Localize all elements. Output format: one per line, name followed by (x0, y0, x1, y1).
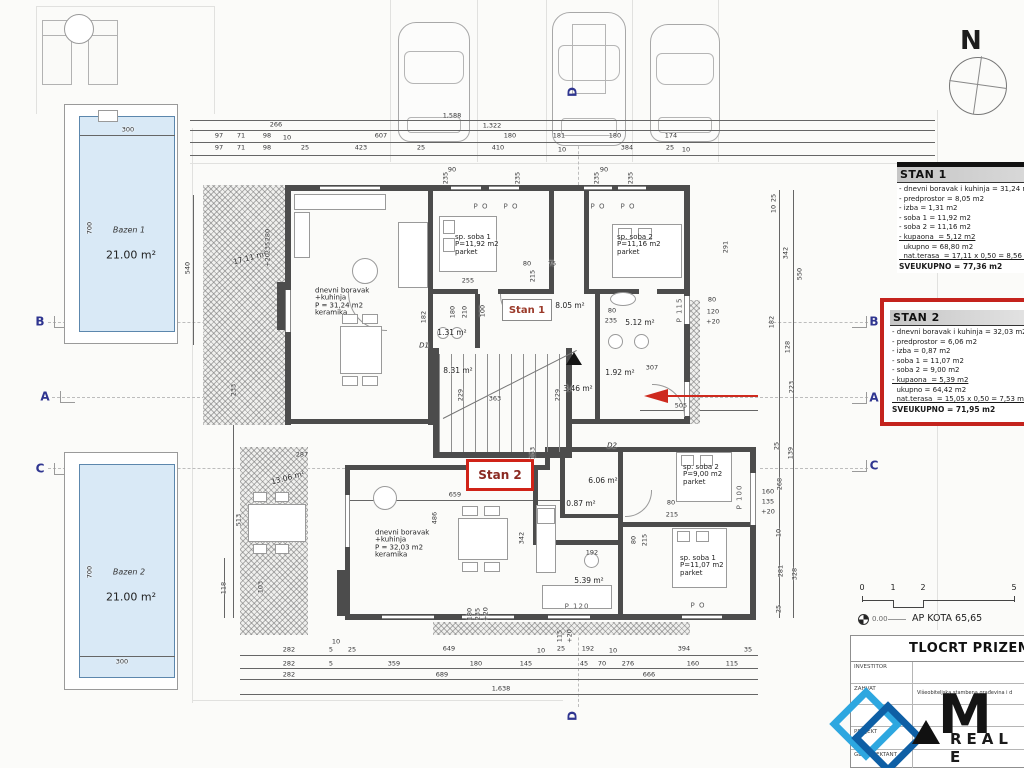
window-label: P O (474, 203, 489, 210)
dim-label: 182 (421, 311, 428, 323)
dim-line (240, 668, 758, 669)
chair-icon (253, 544, 267, 554)
dim-label: 25 (776, 605, 783, 613)
dim-label: 550 (797, 268, 804, 280)
pillow-icon (677, 531, 690, 542)
dim-label: 210 (462, 306, 469, 318)
dim-label: 180 (470, 661, 482, 668)
dim-label: 394 (678, 646, 690, 653)
dim-line (779, 190, 780, 618)
dim-label: 25 (771, 194, 778, 202)
chair-icon (484, 562, 500, 572)
dim-label: 282 (283, 647, 295, 654)
dim-label: 10 (332, 639, 340, 646)
pillow-icon (696, 531, 709, 542)
dim-label: 10 (558, 147, 566, 154)
pool-ladder-icon (98, 110, 118, 122)
window-label: P O (504, 203, 519, 210)
dim-label: 115 (557, 630, 564, 642)
room-label: dnevni boravak +kuhinja P = 31,24 m2 ker… (315, 287, 369, 316)
dim-label: 282 (283, 672, 295, 679)
dim-label: 268 (777, 478, 784, 490)
panel-line: - kupaona = 5,39 m2 (892, 376, 1024, 386)
dim-label: 423 (355, 145, 367, 152)
dim-label: 363 (489, 396, 501, 403)
dim-label: 75 (548, 261, 556, 268)
dim-label: 307 (646, 365, 658, 372)
panel-line: - izba = 0,87 m2 (892, 347, 1024, 357)
dim-label: 540 (185, 262, 192, 274)
dim-label: 97 (215, 133, 223, 140)
dim-label: 71 (237, 133, 245, 140)
dim-label: 689 (436, 672, 448, 679)
kitchen-counter-icon (398, 222, 428, 288)
window-label: P 120 (565, 603, 590, 610)
terrace-table-icon (248, 504, 306, 542)
panel-line: - predprostor = 6,06 m2 (892, 338, 1024, 348)
pool-area: 21.00 m² (106, 249, 156, 262)
dim-label: 25 (417, 145, 425, 152)
dim-label: +20 (761, 509, 775, 516)
dim-label: 182 (769, 316, 776, 328)
car-icon (552, 12, 626, 146)
dim-label: 359 (388, 661, 400, 668)
dim-label: 649 (443, 646, 455, 653)
panel-line: - izba = 1,31 m2 (899, 204, 1024, 214)
dim-label: 115 (726, 661, 738, 668)
door-label: D1 (419, 342, 429, 349)
panel-line: - predprostor = 8,05 m2 (899, 195, 1024, 205)
dim-label: 659 (449, 492, 461, 499)
grid-letter: D (567, 87, 580, 97)
dim-label: 1,638 (492, 686, 511, 693)
stan2-panel-title: STAN 2 (890, 310, 1024, 326)
dim-label: 223 (789, 381, 796, 393)
dim-label: 35 (744, 647, 752, 654)
door-opening (684, 382, 690, 416)
dim-label: 10 (682, 147, 690, 154)
dining-table-icon (340, 326, 382, 374)
dim-label: 145 (520, 661, 532, 668)
dim-label: 282 (283, 661, 295, 668)
dim-line (240, 655, 758, 656)
dim-label: 25 (348, 647, 356, 654)
dim-label: 255 (462, 278, 474, 285)
panel-line: ukupno = 64,42 m2 (892, 386, 1024, 396)
dim-label: 215 (642, 534, 649, 546)
dim-label: 10 (776, 529, 783, 537)
dim-label: 98 (263, 133, 271, 140)
window (618, 186, 646, 190)
dim-label: 410 (492, 145, 504, 152)
dim-label: 160 (687, 661, 699, 668)
panel-line: - dnevni boravak i kuhinja = 31,24 m2 (899, 185, 1024, 195)
window-label: P O (591, 203, 606, 210)
dim-label: 192 (586, 550, 598, 557)
panel-line: - kupaona = 5,12 m2 (899, 233, 1024, 243)
dim-label: 80 (608, 308, 616, 315)
dim-label: 276 (622, 661, 634, 668)
window (451, 186, 481, 190)
stan1-info-panel: STAN 1 - dnevni boravak i kuhinja = 31,2… (897, 162, 1024, 273)
dim-label: 300 (122, 127, 134, 134)
window (489, 186, 519, 190)
round-table-icon (64, 14, 94, 44)
car-icon (398, 22, 470, 142)
dim-label: +20 (706, 319, 720, 326)
dim-label: 235 (628, 172, 635, 184)
dim-label: 215 (666, 512, 678, 519)
dim-label: 287 (296, 452, 308, 459)
kota-label: AP KOTA 65,65 (912, 613, 982, 624)
panel-line: - soba 2 = 9,00 m2 (892, 366, 1024, 376)
dim-label: 128 (785, 341, 792, 353)
chair-icon (275, 544, 289, 554)
dim-label: 180 (504, 133, 516, 140)
dim-label: 266 (270, 122, 282, 129)
parking-divider (632, 0, 633, 162)
dim-label: 45 (580, 661, 588, 668)
panel-line: - soba 1 = 11,92 m2 (899, 214, 1024, 224)
dim-line (190, 155, 935, 156)
chair-icon (342, 376, 358, 386)
window (682, 615, 722, 619)
dim-label: 192 (582, 646, 594, 653)
room-label: sp. soba 1 P=11,92 m2 parket (455, 234, 499, 256)
dim-line (793, 190, 794, 618)
pool-name: Bazen 1 (113, 226, 145, 235)
dim-label: 280 (265, 229, 272, 241)
stan1-panel-lines: - dnevni boravak i kuhinja = 31,24 m2- p… (897, 183, 1024, 273)
dim-label: 328 (792, 568, 799, 580)
level-value: 0.00 (872, 615, 888, 623)
grid-letter: B (35, 316, 44, 329)
dim-label: 10 (537, 648, 545, 655)
chair-icon (253, 492, 267, 502)
dim-label: 80 (708, 297, 716, 304)
stan1-panel-title: STAN 1 (897, 167, 1024, 183)
level-datum-icon (858, 614, 869, 625)
dim-label: 180 (609, 133, 621, 140)
window-label: P O (621, 203, 636, 210)
door-arc (625, 490, 652, 517)
dim-line (80, 135, 175, 136)
kitchen-sink-icon (537, 508, 555, 524)
drawing-title: TLOCRT PRIZEMLJA (851, 636, 1024, 662)
dim-line (240, 694, 758, 695)
scale-tick: 2 (920, 583, 925, 592)
window (684, 296, 690, 324)
grid-line-a (700, 397, 868, 398)
toilet-icon (608, 334, 623, 349)
dim-label: 100 (480, 305, 487, 317)
dim-label: 235 (515, 172, 522, 184)
dim-label: 25 (666, 145, 674, 152)
dim-label: 139 (788, 447, 795, 459)
panel-line: - soba 2 = 11,16 m2 (899, 223, 1024, 233)
sofa-icon (294, 194, 386, 210)
dim-label: 700 (87, 566, 94, 578)
grid-letter: C (870, 460, 879, 473)
terrace-hatch-stan1 (203, 185, 285, 425)
dim-label: 174 (665, 133, 677, 140)
north-label: N (960, 26, 982, 56)
chair-icon (462, 562, 478, 572)
area-label: 5.39 m² (574, 577, 603, 585)
window (382, 615, 434, 619)
dim-label: 513 (236, 514, 243, 526)
dim-label: 25 (774, 442, 781, 450)
dim-label: 229 (458, 389, 465, 401)
dim-label: 103 (258, 581, 265, 593)
window-label: P 115 (676, 298, 683, 323)
panel-line: - soba 1 = 11,07 m2 (892, 357, 1024, 367)
area-label: 1.92 m² (605, 369, 634, 377)
dim-label: +20 (567, 629, 574, 643)
panel-line: SVEUKUPNO = 71,95 m2 (892, 405, 1024, 415)
stan2-plan-label-text: Stan 2 (478, 468, 522, 482)
dim-label: 98 (263, 145, 271, 152)
legend-line (888, 619, 906, 620)
grid-elbow (60, 391, 75, 403)
dim-label: 233 (231, 384, 238, 396)
window (320, 186, 380, 190)
site-line (190, 163, 938, 164)
pool-name: Bazen 2 (113, 568, 145, 577)
dim-label: 90 (600, 167, 608, 174)
dim-label: 10 (771, 205, 778, 213)
title-block-row-label: INVESTITOR (851, 662, 913, 683)
area-label: 8.31 m² (443, 367, 472, 375)
area-label: 5.12 m² (625, 319, 654, 327)
dim-label: 180 (467, 608, 474, 620)
dim-label: 25 (557, 646, 565, 653)
grid-elbow (852, 392, 867, 404)
grid-letter: D (567, 711, 580, 721)
site-line (214, 6, 215, 114)
area-label: 8.05 m² (555, 302, 584, 310)
panel-line: - dnevni boravak i kuhinja = 32,03 m2 (892, 328, 1024, 338)
sofa-icon (294, 212, 310, 258)
dim-label: 10 (283, 135, 291, 142)
grid-letter: A (40, 391, 49, 404)
parking-divider (477, 0, 478, 162)
dim-label: 160 (762, 489, 774, 496)
dim-label: 235 (605, 318, 617, 325)
dim-label: 70 (598, 661, 606, 668)
dim-label: 229 (555, 389, 562, 401)
entrance-arrow-line (668, 395, 758, 397)
window (750, 473, 756, 525)
dim-label: 97 (215, 145, 223, 152)
dim-label: 215 (530, 270, 537, 282)
dim-label: 135 (762, 499, 774, 506)
sink-icon (610, 292, 636, 306)
grid-elbow (852, 460, 867, 472)
dim-label: 120 (707, 309, 719, 316)
pillow-icon (443, 220, 455, 234)
title-block-row: INVESTITOR (851, 662, 1024, 684)
scale-tick: 5 (1011, 583, 1016, 592)
panel-line: ukupno = 68,80 m2 (899, 243, 1024, 253)
dim-label: 384 (621, 145, 633, 152)
chair-icon (362, 376, 378, 386)
stair-direction-icon (566, 352, 582, 365)
room-label: dnevni boravak +kuhinja P = 32,03 m2 ker… (375, 529, 429, 558)
site-line (36, 6, 37, 114)
floor-plan-drawing: Bazen 1 21.00 m² Bazen 2 21.00 m² (0, 0, 1024, 768)
dim-label: 80 (523, 261, 531, 268)
dining-table-icon (458, 518, 508, 560)
grid-elbow (852, 316, 867, 328)
panel-line: nat.terasa = 17,11 x 0,50 = 8,56 m2 (899, 252, 1024, 262)
stan2-plan-label: Stan 2 (466, 459, 534, 491)
grid-letter: C (36, 463, 45, 476)
bidet-icon (634, 334, 649, 349)
pillow-icon (443, 238, 455, 252)
area-label: 0.87 m² (566, 500, 595, 508)
dim-label: 10 (609, 648, 617, 655)
chair-icon (275, 492, 289, 502)
area-label: 1.31 m² (437, 329, 466, 337)
dim-label: +20 (483, 607, 490, 621)
chair-icon (484, 506, 500, 516)
dim-label: 486 (432, 512, 439, 524)
car-icon (650, 24, 720, 142)
window (345, 495, 350, 547)
window-label: P 100 (736, 485, 743, 510)
dim-label: 607 (375, 133, 387, 140)
dim-label: 1,322 (483, 123, 502, 130)
dim-line (190, 120, 935, 121)
logo-subtext: REAL E (950, 730, 1024, 766)
dim-label: 700 (87, 222, 94, 234)
pool-area: 21.00 m² (106, 591, 156, 604)
dim-label: 281 (778, 565, 785, 577)
door-label: D2 (607, 442, 617, 449)
grid-letter: A (869, 392, 878, 405)
dim-line (240, 679, 758, 680)
dim-label: 342 (783, 247, 790, 259)
stan2-panel-lines: - dnevni boravak i kuhinja = 32,03 m2- p… (890, 326, 1024, 416)
stan2-info-panel: STAN 2 - dnevni boravak i kuhinja = 32,0… (880, 298, 1024, 426)
dim-label: 133 (530, 447, 537, 459)
title-block-row-value (913, 750, 917, 768)
parking-divider (546, 0, 547, 162)
dim-label: 118 (221, 582, 228, 594)
site-line (36, 6, 214, 7)
area-label: 6.06 m² (588, 477, 617, 485)
area-label: 3.46 m² (563, 385, 592, 393)
grid-letter: B (869, 316, 878, 329)
dim-label: 300 (116, 659, 128, 666)
window (285, 290, 291, 332)
dim-label: 666 (643, 672, 655, 679)
dim-label: 181 (553, 133, 565, 140)
dim-label: 291 (723, 241, 730, 253)
dim-label: 235 (594, 172, 601, 184)
panel-line: SVEUKUPNO = 77,36 m2 (899, 262, 1024, 272)
entrance-arrow-icon (644, 389, 668, 403)
scale-tick: 0 (859, 583, 864, 592)
logo-triangle (912, 720, 940, 744)
parking-divider (390, 0, 391, 162)
dim-label: 80 (631, 536, 638, 544)
stan1-plan-label: Stan 1 (502, 299, 552, 321)
title-block-row-value (913, 662, 917, 683)
room-label: sp. soba 2 P=11,16 m2 parket (617, 234, 661, 256)
dim-line (193, 195, 194, 345)
window-label: P O (691, 602, 706, 609)
chair-icon (462, 506, 478, 516)
dim-label: 80 (667, 500, 675, 507)
dim-label: 5 (329, 647, 333, 654)
wall-hatch (690, 300, 700, 424)
coffee-table-icon (352, 258, 378, 284)
coffee-table-icon (373, 486, 397, 510)
dim-label: 25 (301, 145, 309, 152)
site-line (193, 700, 563, 701)
dim-label: 235 (475, 608, 482, 620)
window (584, 186, 612, 190)
room-label: sp. soba 2 P=9,00 m2 parket (683, 464, 722, 486)
dim-label: 505 (675, 403, 687, 410)
dim-label: 342 (519, 532, 526, 544)
dim-label: 5 (329, 661, 333, 668)
panel-line: nat.terasa = 15,05 x 0,50 = 7,53 m2 (892, 395, 1024, 405)
room-label: sp. soba 1 P=11,07 m2 parket (680, 555, 724, 577)
dim-label: 1,588 (443, 113, 462, 120)
stan1-plan-label-text: Stan 1 (509, 305, 545, 316)
dim-label: 71 (237, 145, 245, 152)
window (548, 615, 590, 619)
dim-label: 235 (443, 172, 450, 184)
scale-tick: 1 (890, 583, 895, 592)
dim-label: 180 (450, 306, 457, 318)
